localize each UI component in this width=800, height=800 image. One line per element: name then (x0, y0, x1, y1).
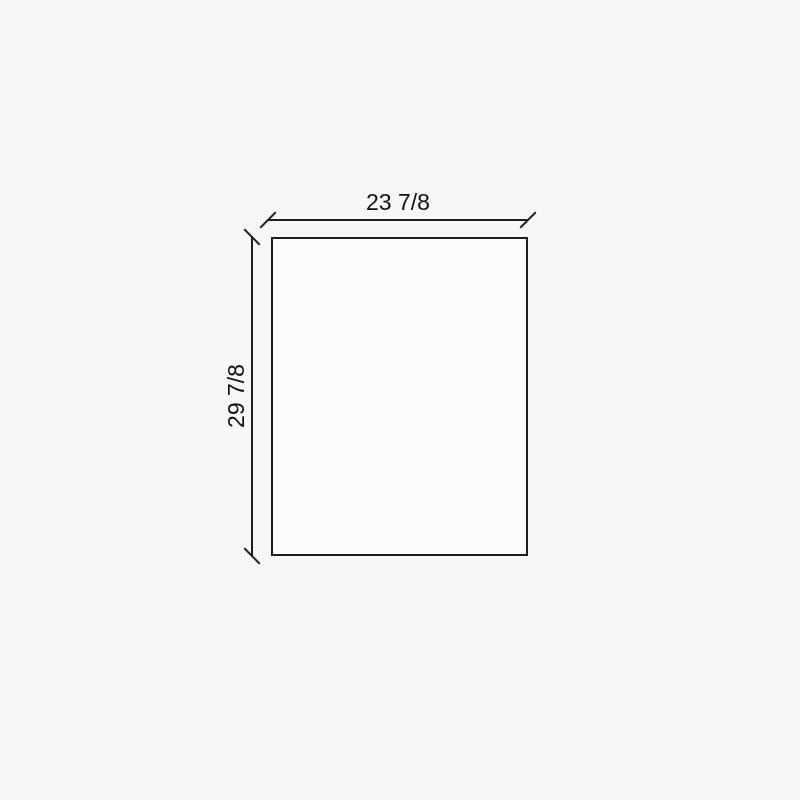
drawing-canvas: 23 7/8 29 7/8 (0, 0, 800, 800)
height-dimension-line (251, 237, 253, 556)
height-dimension-label: 29 7/8 (223, 364, 249, 428)
width-dimension-label: 23 7/8 (268, 189, 528, 215)
width-dimension-line (268, 219, 528, 221)
panel-outline (271, 237, 528, 556)
